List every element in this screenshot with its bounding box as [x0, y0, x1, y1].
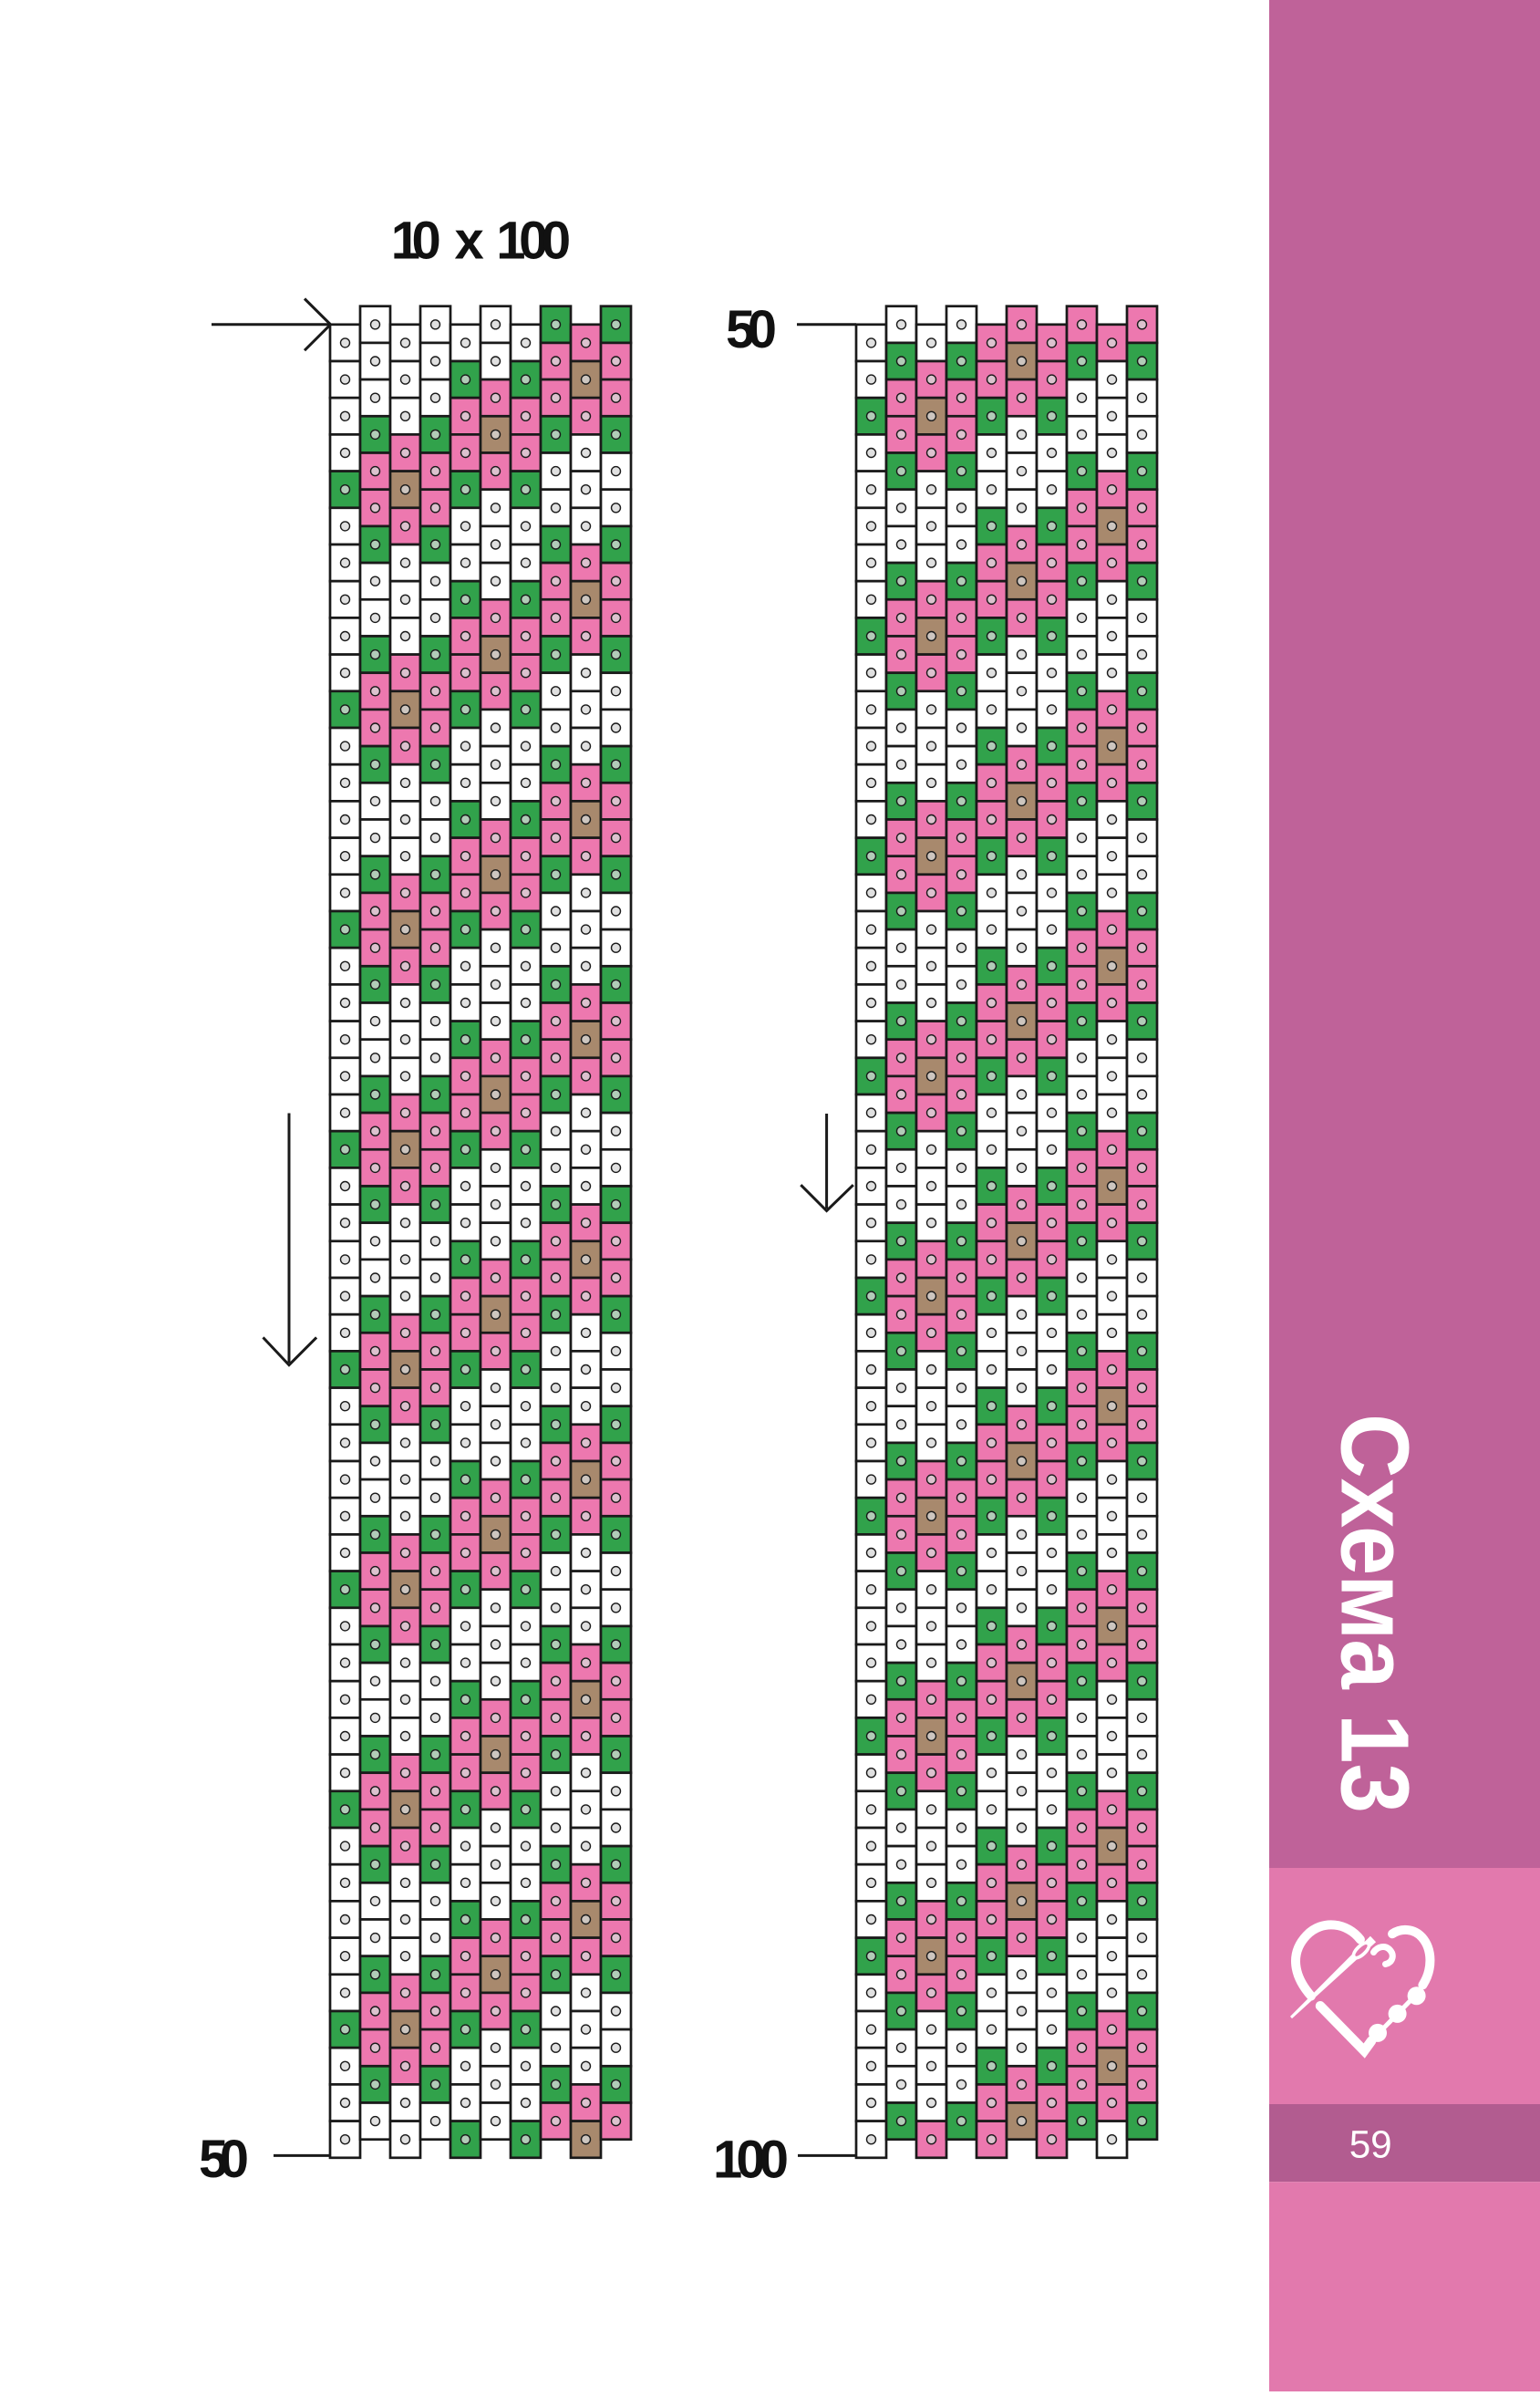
svg-text:100: 100: [713, 2131, 789, 2190]
svg-text:50: 50: [726, 300, 777, 359]
svg-text:50: 50: [199, 2130, 249, 2189]
svg-text:59: 59: [1349, 2123, 1392, 2167]
svg-text:10: 10: [391, 212, 441, 271]
svg-text:Схема 13: Схема 13: [1321, 1414, 1429, 1813]
svg-text:100: 100: [496, 212, 571, 271]
svg-text:x: x: [455, 212, 484, 271]
